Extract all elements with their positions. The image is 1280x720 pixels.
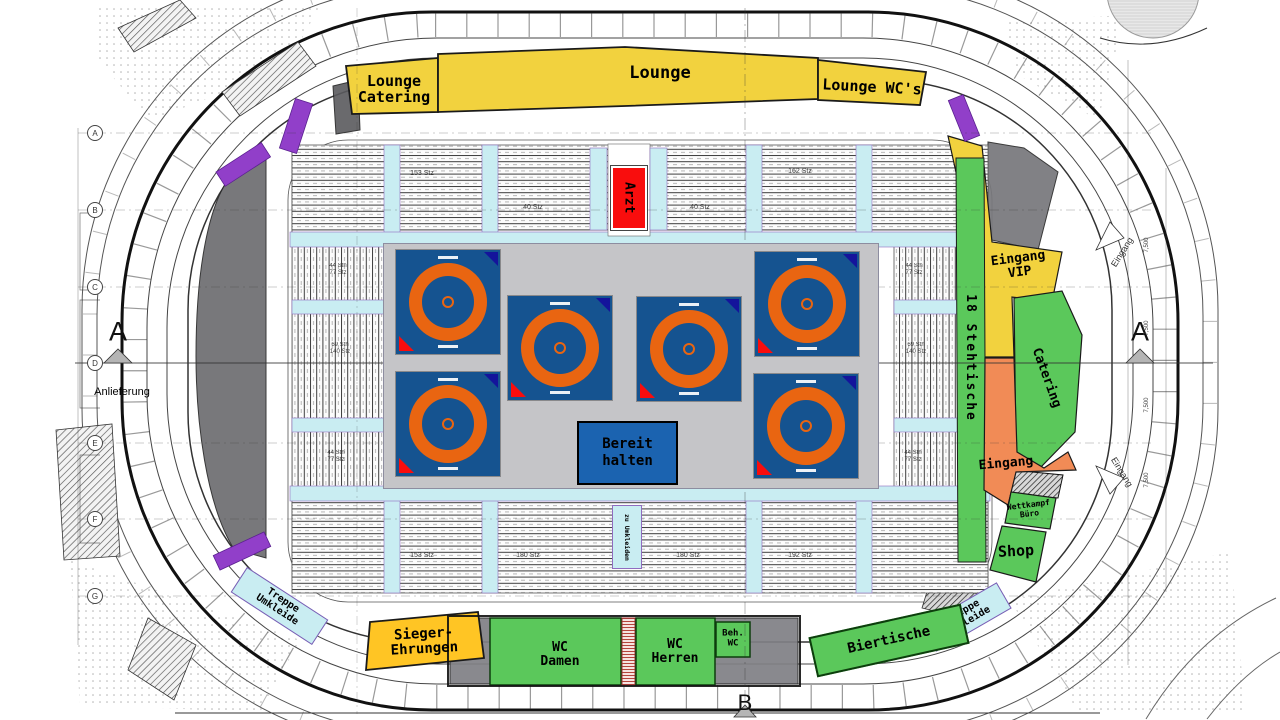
mat-blue-corner [596,298,610,312]
wrestling-mat [637,297,741,401]
lounge-label: Lounge [629,64,690,82]
wc-divider-stair [622,618,635,685]
mat-brand-mark [797,347,817,350]
mat-red-corner [399,458,414,473]
mat-red-corner [511,382,526,397]
arzt-box: Arzt [611,166,647,230]
mat-brand-mark [550,302,570,305]
mat-red-corner [758,338,773,353]
mat-brand-mark [797,258,817,261]
mat-blue-corner [843,254,857,268]
seat-count: 153 Stz [410,552,434,560]
wc-herren-label: WC Herren [652,638,699,666]
mat-blue-corner [725,299,739,313]
mat-brand-mark [438,378,458,381]
seat-count: 69 Sth140 Stz [330,342,350,356]
section-a-right-triangle [1126,349,1154,363]
grid-letter-f: F [87,511,103,527]
grid-letter-b: B [87,202,103,218]
dimension-label: 7,500 [1144,397,1150,412]
bereit-halten-line2: halten [602,453,653,470]
seat-count: 69 Sth140 Stz [906,342,926,356]
mat-center-circle [554,342,566,354]
mat-red-corner [640,383,655,398]
mat-center-circle [442,296,454,308]
mat-brand-mark [438,467,458,470]
zone-lounge [438,47,818,112]
mat-brand-mark [679,392,699,395]
lounge-catering-label: Lounge Catering [358,73,430,105]
grid-letter-d: D [87,355,103,371]
grid-letter-g: G [87,588,103,604]
arzt-label: Arzt [622,182,637,213]
mat-blue-corner [842,376,856,390]
sieger-ehrungen-label: Sieger- Ehrungen [390,625,459,659]
seat-count: 44 Sth77 Stz [327,450,344,464]
stehtische-label: 18 Stehtische [963,294,977,422]
seat-count: 44 Sth77 Stz [904,450,921,464]
mat-center-circle [801,298,813,310]
bereit-halten-box: Bereit halten [577,421,678,485]
biertische-label: Biertische [846,624,932,657]
section-b: B [738,690,753,716]
arena-floor-plan: Bereit halten Arzt zu Umkleiden Treppe U… [0,0,1280,720]
seat-count: 162 Stz [788,168,812,176]
grid-letter-a: A [87,125,103,141]
dimension-label: 7,500 [1144,237,1150,252]
beh-wc-label: Beh. WC [722,629,744,648]
section-a-left: A [109,317,127,348]
seat-count: 153 Stz [410,170,434,178]
wrestling-mat [755,252,859,356]
grid-letter-c: C [87,279,103,295]
seat-count: 40 Stz [523,204,543,212]
wrestling-mat [396,250,500,354]
mat-center-circle [683,343,695,355]
mat-brand-mark [679,303,699,306]
mat-brand-mark [550,391,570,394]
mat-blue-corner [484,252,498,266]
shop-label: Shop [998,542,1035,560]
seat-count: 44 Sth77 Stz [905,263,922,277]
mat-brand-mark [438,256,458,259]
seat-count: 180 Stz [676,552,700,560]
dimension-label: 7,500 [1144,472,1150,487]
mat-brand-mark [438,345,458,348]
mat-red-corner [757,460,772,475]
mat-center-circle [442,418,454,430]
seat-count: 44 Sth77 Stz [329,263,346,277]
section-a-left-triangle [104,349,132,363]
mat-brand-mark [796,380,816,383]
bereit-halten-line1: Bereit [602,436,653,453]
wrestling-mat [754,374,858,478]
wc-damen-label: WC Damen [540,641,579,669]
wrestling-mat [508,296,612,400]
mat-red-corner [399,336,414,351]
grid-letter-e: E [87,435,103,451]
zu-umkleiden-corridor: zu Umkleiden [612,505,642,569]
mat-brand-mark [796,469,816,472]
seat-count: 40 Stz [690,204,710,212]
anlieferung-label: Anlieferung [94,387,150,399]
seat-count: 180 Stz [516,552,540,560]
mat-center-circle [800,420,812,432]
zu-umkleiden-label: zu Umkleiden [623,514,631,561]
dimension-label: 7,500 [1144,320,1150,335]
mat-blue-corner [484,374,498,388]
wrestling-mat [396,372,500,476]
seat-count: 192 Stz [788,552,812,560]
